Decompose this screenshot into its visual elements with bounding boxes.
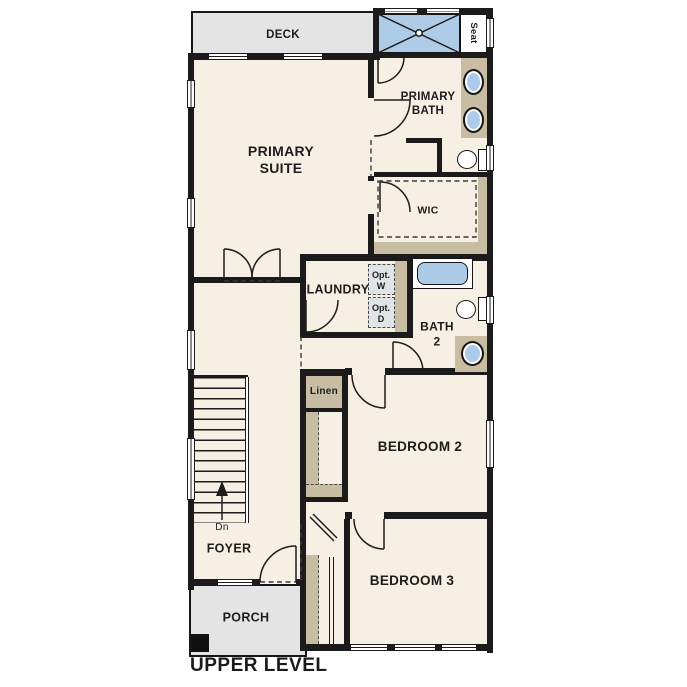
room-label-laundry: LAUNDRY (307, 282, 370, 297)
room-label-wic: WIC (417, 205, 438, 218)
room-label-porch: PORCH (223, 610, 270, 625)
wall (300, 369, 348, 376)
window (283, 53, 323, 60)
wall (345, 512, 352, 519)
window (486, 18, 494, 48)
wall (344, 519, 350, 651)
wall (487, 8, 493, 653)
window (217, 579, 253, 586)
wic-shelf (374, 242, 487, 254)
shower-x-icon (378, 14, 460, 53)
floor-plan-canvas: DECK Seat PRIMARY BATH PRIMARY SUITE WIC… (0, 0, 687, 687)
window (486, 296, 494, 324)
window (350, 644, 388, 651)
closet-shelf (306, 484, 342, 497)
window (187, 438, 195, 500)
window (208, 53, 248, 60)
label-optional-dryer: Opt. D (372, 303, 390, 325)
window (426, 8, 460, 14)
window (384, 8, 418, 14)
window (441, 644, 477, 651)
wall (342, 376, 348, 412)
wall (368, 53, 374, 98)
room-label-bath2: BATH 2 (420, 319, 454, 348)
wall (296, 579, 306, 586)
wall (342, 412, 348, 502)
tub-icon (417, 262, 468, 285)
room-label-foyer: FOYER (207, 541, 252, 556)
window (187, 330, 195, 370)
wall (188, 579, 217, 586)
laundry-counter (395, 261, 407, 332)
wall (188, 277, 300, 283)
label-stairs-down: Dn (215, 522, 228, 534)
stair-rail (245, 377, 249, 523)
wall (300, 254, 306, 338)
label-seat: Seat (467, 22, 479, 43)
sink-icon (463, 69, 484, 95)
wall (300, 332, 413, 338)
wall (384, 512, 493, 519)
window (486, 145, 494, 171)
closet-front-line (333, 557, 334, 644)
wic-shelf (478, 177, 487, 242)
room-label-bedroom3: BEDROOM 3 (370, 573, 454, 589)
sink-icon (461, 341, 484, 366)
plan-title: UPPER LEVEL (190, 655, 327, 677)
wall (373, 8, 378, 57)
closet-front-line (329, 557, 330, 644)
room-label-linen: Linen (310, 386, 338, 398)
window (486, 420, 494, 468)
window (187, 198, 195, 228)
closet-rod (306, 555, 319, 644)
label-optional-washer: Opt. W (372, 270, 390, 292)
room-label-bedroom2: BEDROOM 2 (378, 439, 462, 455)
staircase (194, 377, 247, 523)
wall (374, 172, 493, 177)
porch-post (191, 634, 209, 652)
room-label-primary-bath: PRIMARY BATH (401, 90, 456, 118)
wall (253, 579, 260, 586)
window (394, 644, 436, 651)
room-label-deck: DECK (266, 28, 300, 42)
room-label-primary-suite: PRIMARY SUITE (248, 143, 314, 177)
toilet-icon (456, 300, 476, 319)
window (187, 80, 195, 108)
toilet-icon (457, 150, 477, 169)
sink-icon (463, 107, 484, 133)
